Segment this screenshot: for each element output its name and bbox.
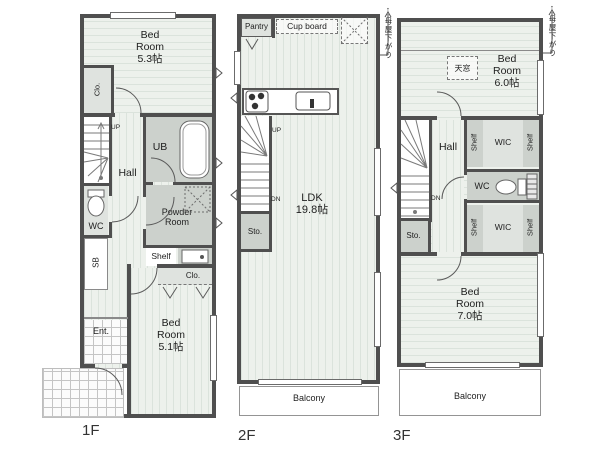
roof-arrow-2f: ↑ [383, 6, 393, 14]
room-label-storage-2f: Sto. [242, 227, 268, 236]
window [537, 253, 544, 337]
floor-plan-canvas: Bed Room 5.3帖 Clo. UP Hall UB WC Powder … [0, 0, 600, 450]
wall [397, 18, 543, 22]
roof-note-2f: 母屋下がり [383, 17, 394, 67]
kitchen-counter [242, 88, 339, 115]
room-label-wic-top: WIC [483, 138, 523, 148]
wall [80, 364, 95, 368]
room-label-bedroom-7-0: Bed Room 7.0帖 [441, 287, 499, 323]
room-label-storage-3f: Sto. [399, 231, 428, 240]
wall [428, 221, 431, 255]
room-label-hall-3f: Hall [432, 142, 464, 154]
wall [237, 14, 380, 18]
wall [401, 252, 437, 256]
wall [467, 169, 539, 172]
wall [143, 115, 146, 185]
window [374, 272, 381, 347]
balcony-label-2f: Balcony [280, 393, 338, 403]
shelf-label: Shelf [470, 204, 479, 252]
refrigerator-space [341, 17, 368, 44]
roof-slope-line [401, 50, 539, 51]
wall [464, 120, 467, 175]
room-label-shelf-1f: Shelf [145, 252, 177, 262]
wall [157, 264, 216, 268]
wall [127, 264, 131, 268]
room-label-bedroom-5-1: Bed Room 5.1帖 [131, 318, 211, 354]
entrance-step-line [84, 317, 128, 319]
room-label-closet-1f: Clo. [93, 65, 102, 115]
stairs-down-label-3f: DN [431, 195, 449, 202]
room-label-pantry: Pantry [241, 22, 272, 31]
stairs-1f-area [84, 117, 109, 183]
stairs-up-label-1f: UP [111, 124, 129, 131]
wall [84, 183, 111, 186]
wall [124, 414, 216, 418]
room-label-wc-1f: WC [84, 221, 108, 231]
room-label-shoebox: SB [92, 238, 101, 288]
roof-arrow-3f: ↑ [547, 4, 557, 12]
room-label-ldk: LDK 19.8帖 [283, 192, 341, 217]
window [110, 12, 176, 19]
window [258, 379, 362, 385]
room-label-hall-1f: Hall [112, 168, 143, 180]
wall [140, 113, 216, 117]
wall [429, 120, 432, 222]
room-label-entrance: Ent. [86, 326, 116, 336]
stairs-2f-area [241, 116, 269, 211]
wall [464, 199, 467, 256]
porch-tile [42, 368, 124, 418]
floor-label-1f: 1F [82, 423, 114, 440]
window [234, 51, 241, 85]
wall [272, 14, 275, 38]
room-label-powder: Powder Room [146, 207, 208, 227]
shelf-label: Shelf [526, 204, 535, 252]
room-label-bedroom-5-3: Bed Room 5.3帖 [108, 30, 192, 66]
shelf-label: Shelf [470, 119, 479, 167]
balcony-label-3f: Balcony [433, 391, 507, 401]
window [537, 60, 544, 115]
window [425, 362, 520, 368]
room-label-closet-mid: Clo. [178, 271, 208, 280]
roof-note-3f: 母屋下がり [547, 15, 558, 65]
floor-label-3f: 3F [393, 428, 425, 445]
label-cupboard: Cup board [276, 22, 338, 32]
room-hall-3f [432, 120, 464, 252]
room-label-bedroom-6-0: Bed Room 6.0帖 [478, 54, 536, 90]
wall [173, 182, 216, 185]
shelf-label: Shelf [526, 119, 535, 167]
room-label-ub: UB [147, 142, 173, 154]
wall [143, 185, 146, 197]
wall [397, 18, 401, 367]
window [210, 315, 217, 381]
room-label-wc-3f: WC [468, 181, 496, 191]
wall [461, 252, 539, 256]
wall [237, 249, 272, 252]
wall [237, 211, 272, 214]
wall [269, 211, 272, 252]
wall [111, 65, 114, 117]
wall [397, 218, 429, 221]
wall [143, 245, 216, 248]
floor-label-2f: 2F [238, 428, 270, 445]
window [374, 148, 381, 216]
stairs-3f-area [401, 120, 429, 222]
skylight-label: 天窓 [447, 64, 478, 73]
room-label-wic-bottom: WIC [483, 223, 523, 233]
stairs-up-label-2f: UP [272, 127, 290, 134]
